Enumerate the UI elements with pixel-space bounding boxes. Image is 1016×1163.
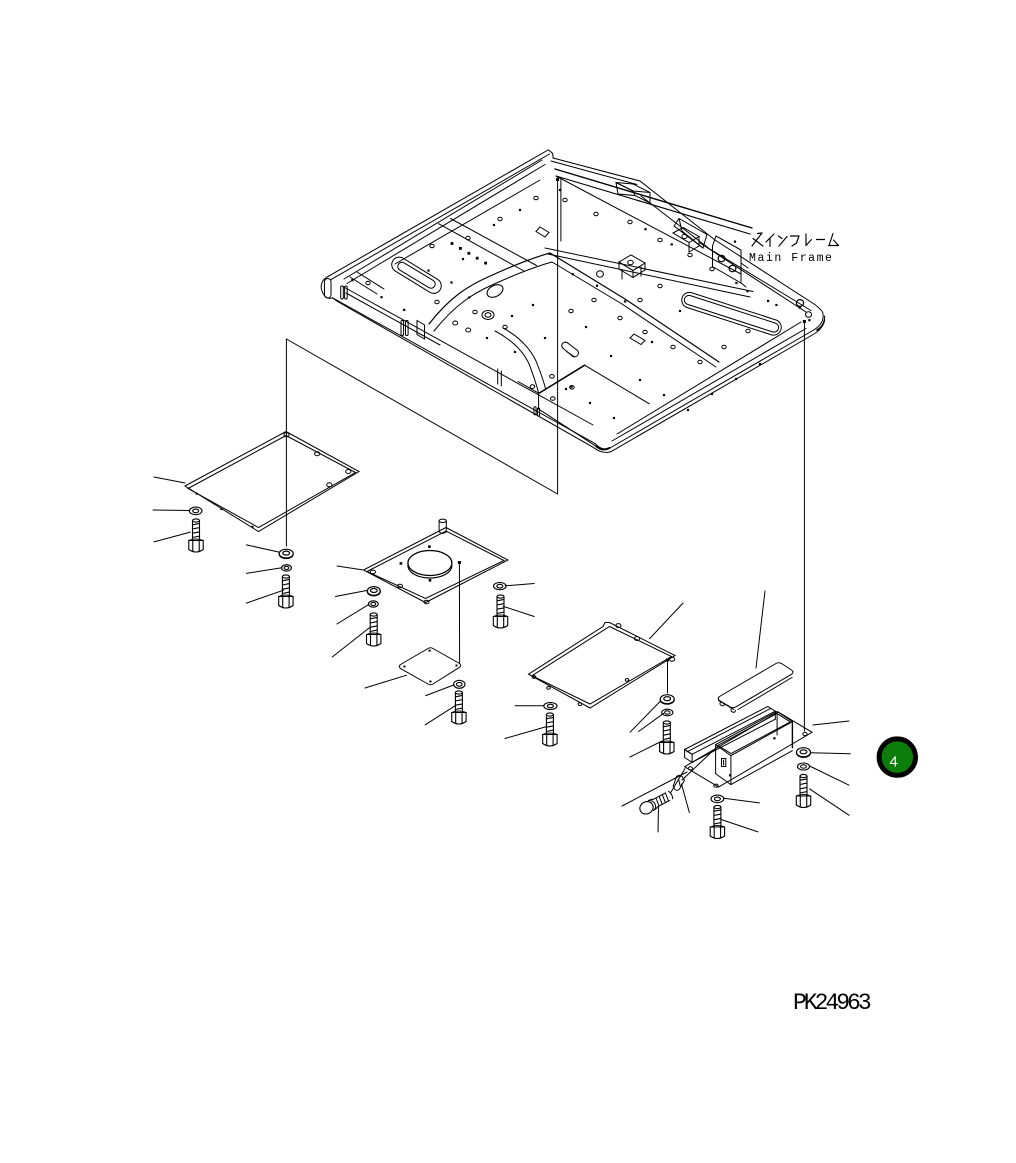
svg-text:PK24963: PK24963	[793, 990, 871, 1016]
svg-text:Main Frame: Main Frame	[749, 252, 834, 265]
svg-text:4: 4	[890, 754, 898, 771]
